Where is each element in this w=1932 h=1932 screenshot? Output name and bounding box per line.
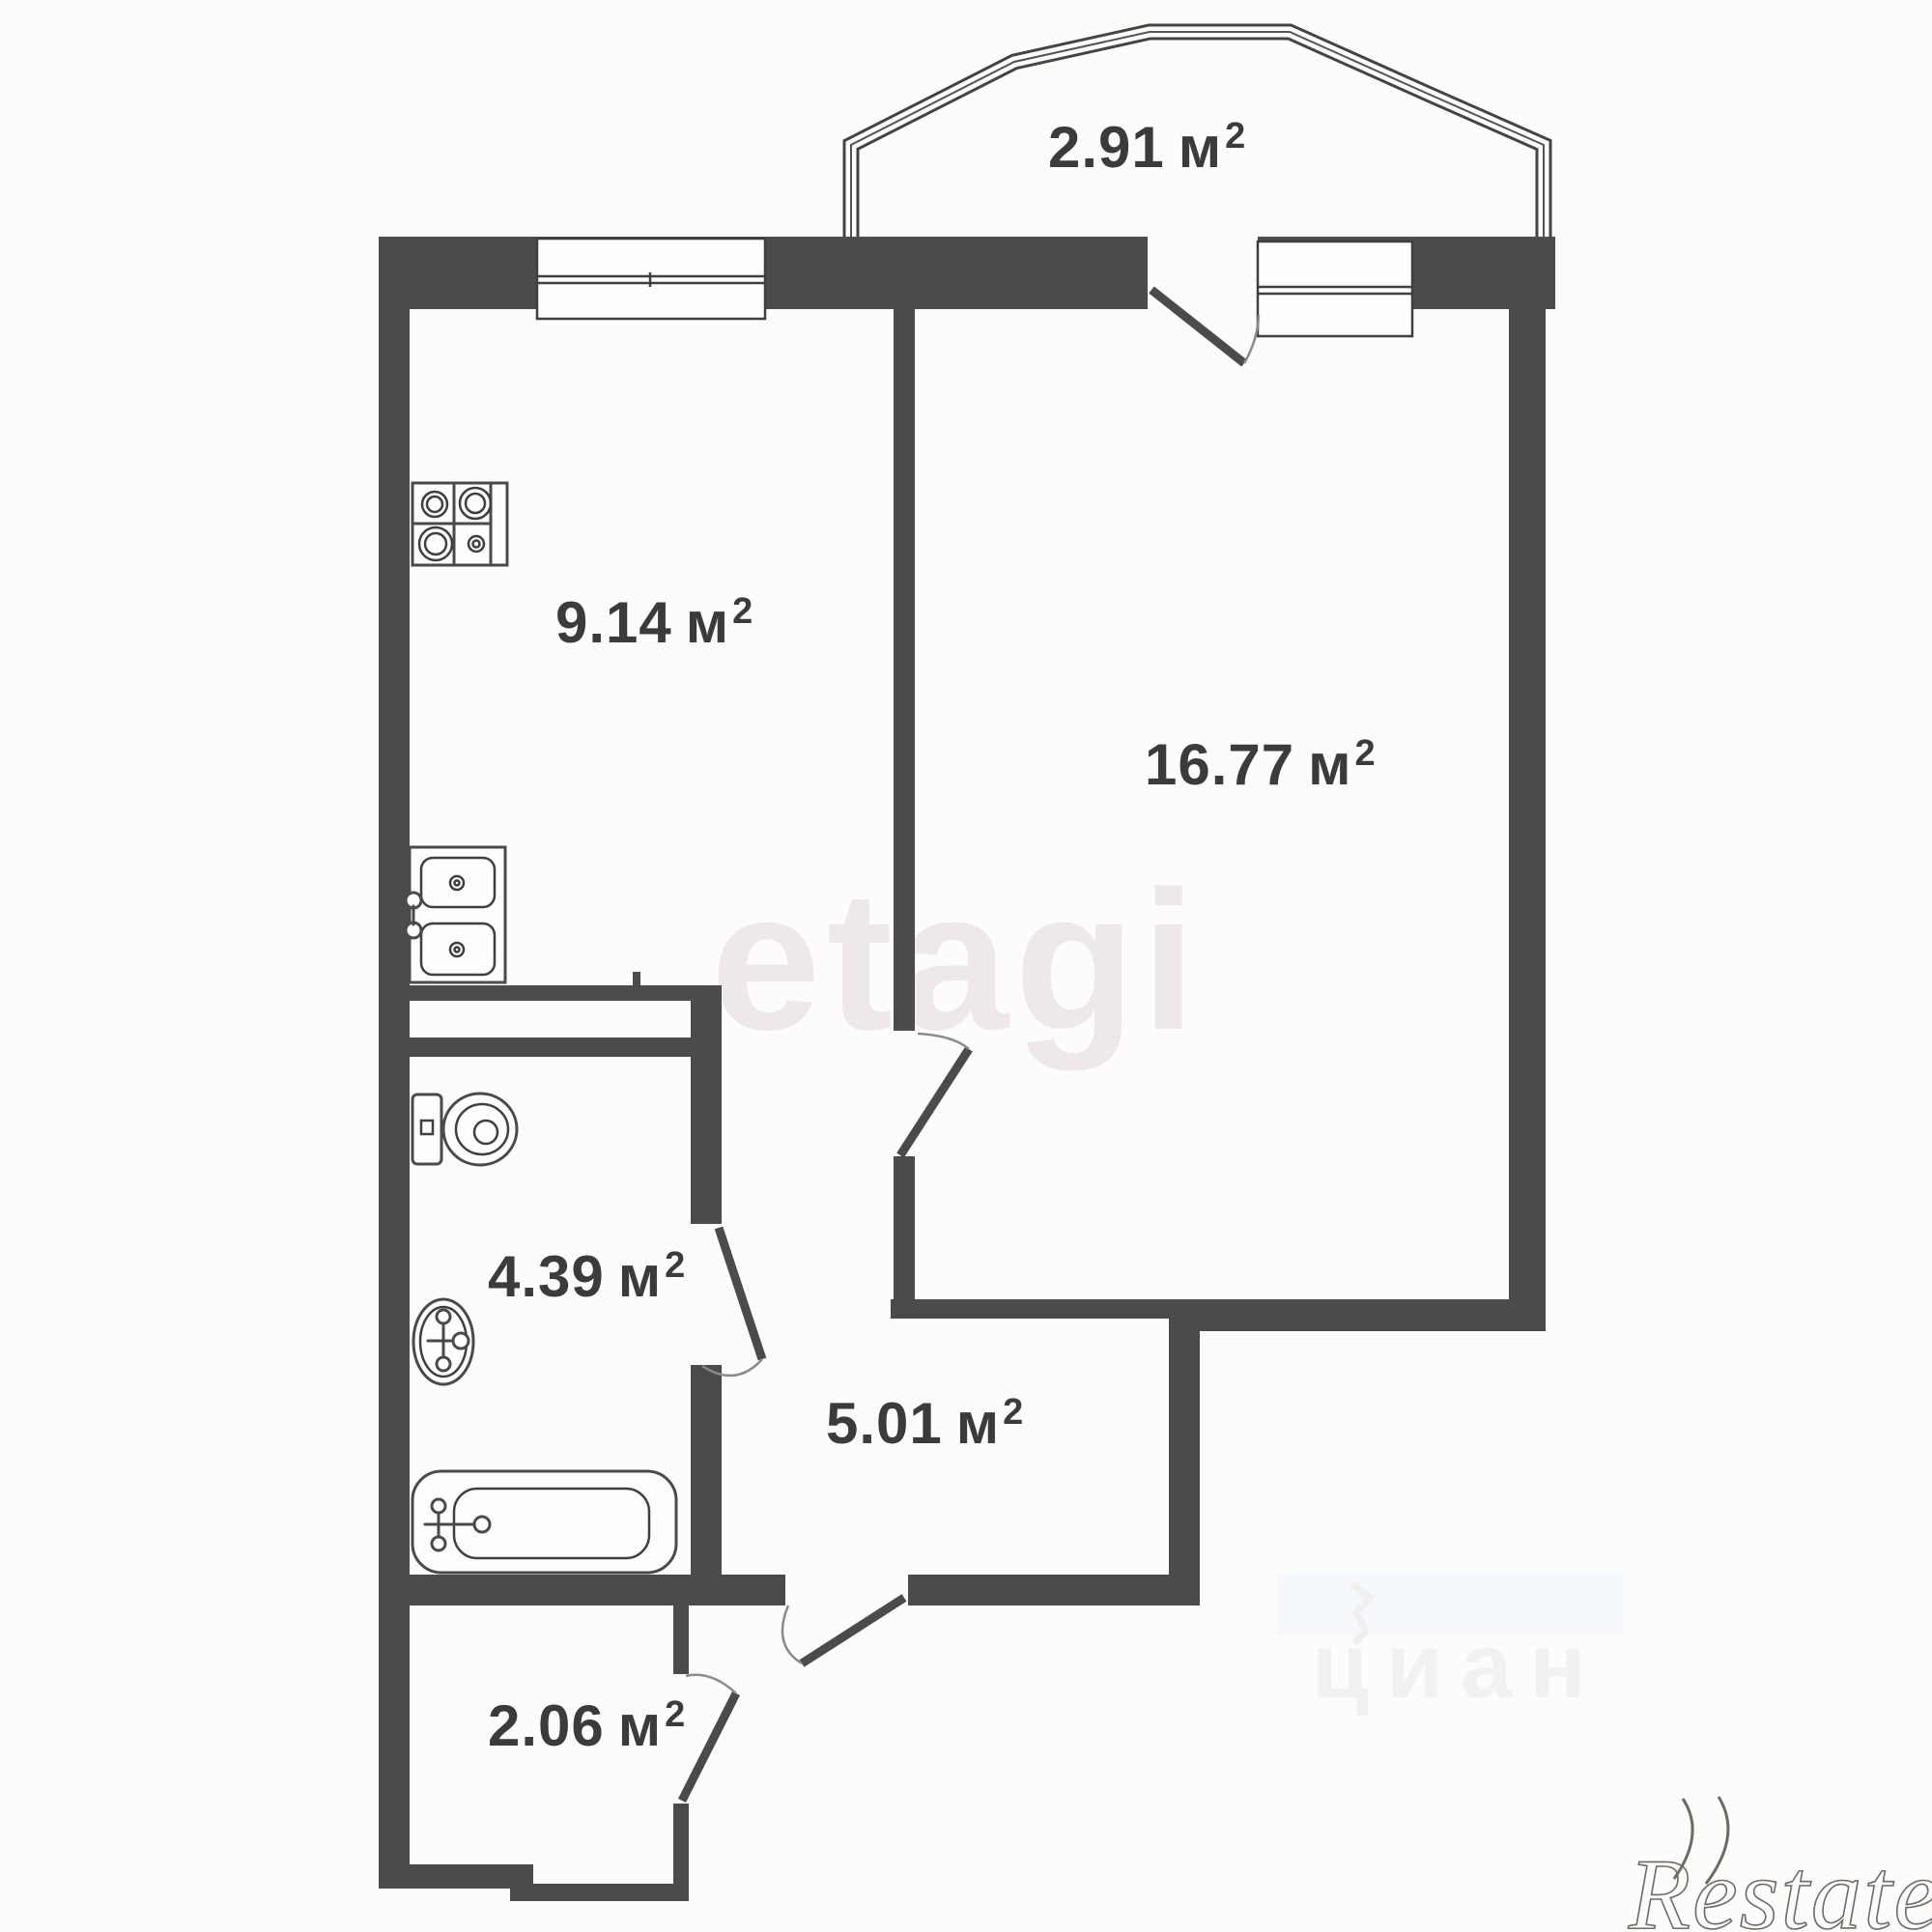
wall-storage-bottom-right <box>510 1884 689 1901</box>
kitchen-window-icon <box>537 239 765 319</box>
wall-bottom-right <box>908 1575 1200 1605</box>
living-room-window-frame <box>1258 241 1412 336</box>
wall-living-room-bottom-thin <box>891 1299 1200 1319</box>
floor-plan-drawing: etagi циан Restate <box>0 0 1932 1932</box>
storage-area-label: 2.06м2 <box>488 1693 686 1758</box>
toilet-icon <box>412 1094 517 1165</box>
wall-left-outer <box>379 237 410 1889</box>
kitchen-area-sup: 2 <box>732 591 753 632</box>
hallway-area-value: 5.01 <box>826 1391 943 1456</box>
wall-divider-upper <box>894 309 915 1031</box>
wall-bottom-left <box>379 1575 785 1605</box>
balcony-area-unit: м <box>1179 115 1222 180</box>
bathtub-icon <box>412 1471 676 1573</box>
wall-divider-lower <box>894 1156 915 1317</box>
wall-duct-connector <box>691 985 722 1057</box>
stove-icon <box>412 483 507 565</box>
living-room-area-sup: 2 <box>1355 733 1377 774</box>
wall-hallway-right <box>1169 1299 1200 1605</box>
wall-storage-right-upper <box>673 1605 689 1674</box>
living-room-area-value: 16.77 <box>1145 732 1294 797</box>
hallway-area-unit: м <box>956 1391 1000 1456</box>
balcony-area-sup: 2 <box>1225 116 1246 156</box>
wall-living-room-right <box>1509 237 1546 1331</box>
agency-watermark: Restate <box>1628 1837 1932 1932</box>
hallway-area-sup: 2 <box>1003 1392 1024 1433</box>
etagi-watermark: etagi <box>711 850 1202 1071</box>
balcony-area-value: 2.91 <box>1048 115 1165 180</box>
washbasin-icon <box>413 1299 473 1384</box>
balcony-area-label: 2.91м2 <box>1048 115 1246 180</box>
floor-plan-canvas: etagi циан Restate <box>0 0 1932 1932</box>
kitchen-area-value: 9.14 <box>555 590 672 655</box>
bathroom-area-label: 4.39м2 <box>488 1244 686 1309</box>
living-room-area-label: 16.77м2 <box>1145 732 1377 797</box>
wall-bathroom-top <box>410 1037 722 1057</box>
wall-bathroom-right-lower <box>691 1365 722 1575</box>
hallway-area-label: 5.01м2 <box>826 1391 1024 1456</box>
bathroom-area-sup: 2 <box>665 1245 686 1286</box>
portal-watermark: циан <box>1312 1614 1603 1718</box>
bathroom-area-unit: м <box>618 1244 662 1309</box>
living-room-window-icon <box>1258 241 1412 336</box>
storage-area-sup: 2 <box>665 1694 686 1735</box>
wall-kitchen-bottom-tick <box>633 972 640 985</box>
kitchen-sink-icon <box>406 847 505 982</box>
bathroom-area-value: 4.39 <box>488 1244 605 1309</box>
storage-area-unit: м <box>618 1693 662 1758</box>
storage-area-value: 2.06 <box>488 1693 605 1758</box>
living-room-area-unit: м <box>1308 732 1351 797</box>
kitchen-area-unit: м <box>686 590 729 655</box>
wall-living-room-bottom <box>1169 1299 1546 1331</box>
wall-bathroom-right-upper <box>691 1057 722 1224</box>
kitchen-area-label: 9.14м2 <box>555 590 753 655</box>
wall-kitchen-bottom <box>410 985 715 1001</box>
